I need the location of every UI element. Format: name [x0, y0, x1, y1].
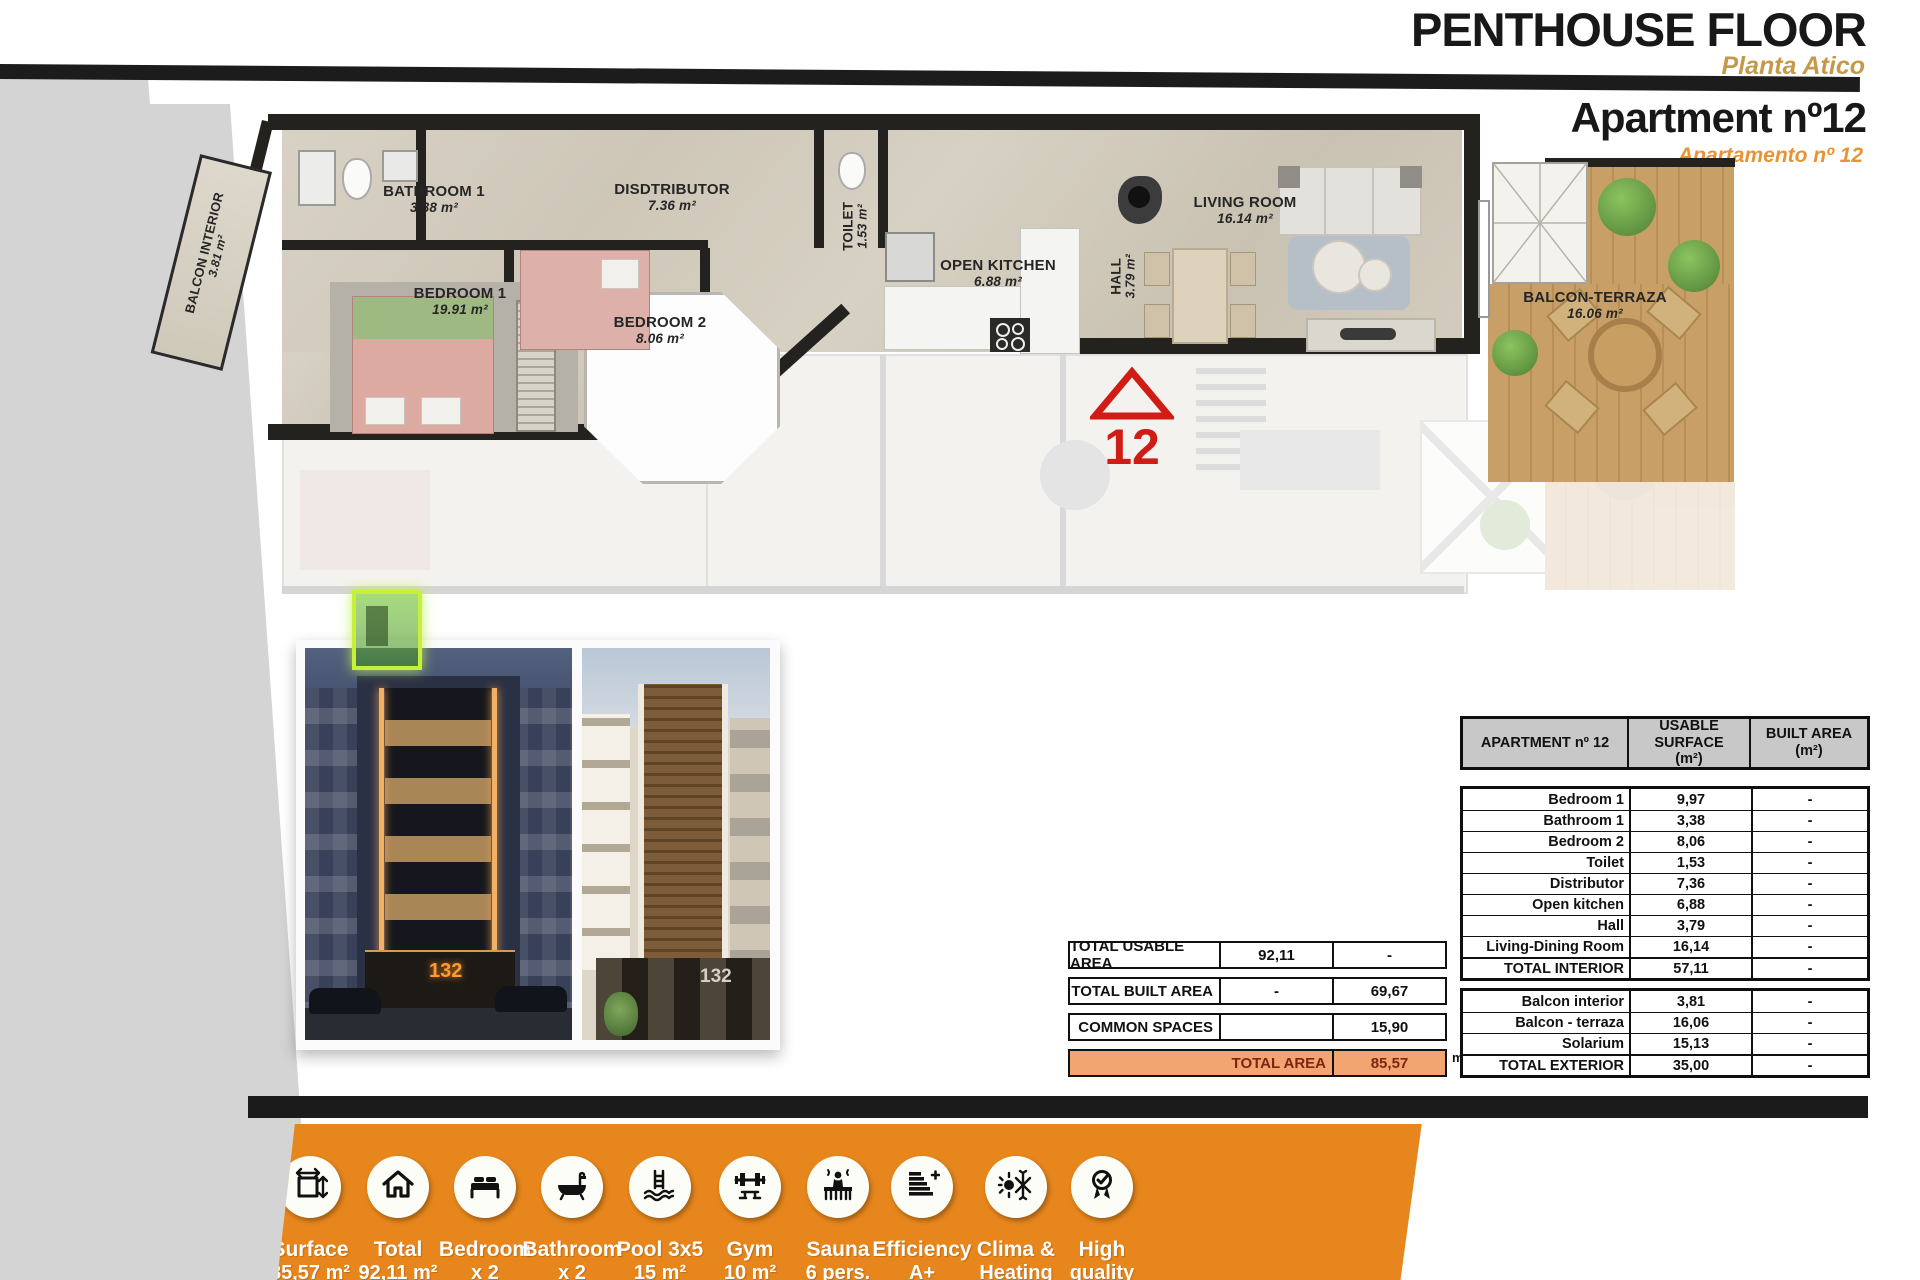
- summary-row-common: COMMON SPACES 15,90: [1068, 1013, 1447, 1041]
- building-number-badge: 132: [429, 960, 462, 983]
- table-row: Living-Dining Room16,14-: [1463, 936, 1867, 957]
- room-label-bathroom1: BATHROOM 13.38 m²: [372, 184, 496, 215]
- efficiency-icon: [904, 1167, 940, 1208]
- stove: [990, 318, 1030, 352]
- table-row-total-interior: TOTAL INTERIOR57,11-: [1463, 957, 1867, 978]
- pouf: [1358, 258, 1392, 292]
- table-row: Balcon interior3,81-: [1463, 991, 1867, 1012]
- room-label-hall: HALL3.79 m²: [1110, 238, 1139, 314]
- dining-chair: [1230, 304, 1256, 338]
- wall-segment: [814, 128, 824, 248]
- table-row: Toilet1,53-: [1463, 852, 1867, 873]
- table-row: Balcon - terraza16,06-: [1463, 1012, 1867, 1033]
- page-title: PENTHOUSE FLOOR: [1411, 2, 1866, 57]
- room-label-toilet: TOILET1.53 m²: [842, 188, 871, 264]
- vanity: [382, 150, 418, 182]
- pergola: [1492, 162, 1588, 284]
- room-label-kitchen: OPEN KITCHEN6.88 m²: [920, 258, 1076, 289]
- pool-icon: [642, 1167, 678, 1208]
- area-table-interior: Bedroom 19,97- Bathroom 13,38- Bedroom 2…: [1460, 786, 1870, 981]
- dining-table: [1172, 248, 1228, 344]
- terrace-table: [1588, 318, 1662, 392]
- summary-total-label: TOTAL AREA: [1070, 1051, 1332, 1075]
- wall-segment: [268, 114, 1480, 130]
- bottom-divider-bar: [248, 1096, 1868, 1118]
- table-row: Open kitchen6,88-: [1463, 894, 1867, 915]
- room-label-bedroom2: BEDROOM 28.06 m²: [598, 315, 722, 346]
- dining-chair: [1230, 252, 1256, 286]
- room-label-distributor: DISDTRIBUTOR7.36 m²: [598, 182, 746, 213]
- terrace-door: [1478, 200, 1490, 318]
- wall-segment: [282, 240, 708, 250]
- features-bar: Surface85,57 m² Total92,11 m² Bedroomx 2: [250, 1124, 1430, 1280]
- room-label-terraza: BALCON-TERRAZA16.06 m²: [1508, 290, 1682, 321]
- table-row-total-exterior: TOTAL EXTERIOR35,00-: [1463, 1054, 1867, 1075]
- table-row: Solarium15,13-: [1463, 1033, 1867, 1054]
- summary-label: TOTAL BUILT AREA: [1070, 979, 1219, 1003]
- summary-value: -: [1219, 979, 1332, 1003]
- apartment-marker-number: 12: [1090, 418, 1174, 476]
- gym-icon: [732, 1167, 768, 1208]
- summary-row-usable: TOTAL USABLE AREA 92,11 -: [1068, 941, 1447, 969]
- wall-segment: [878, 128, 888, 248]
- sauna-icon: [820, 1167, 856, 1208]
- bed-icon: [467, 1167, 503, 1208]
- dining-chair: [1144, 252, 1170, 286]
- building-photo-day: 132: [582, 648, 770, 1040]
- table-row: Distributor7,36-: [1463, 873, 1867, 894]
- summary-total-value: 85,57: [1332, 1051, 1445, 1075]
- summary-label: TOTAL USABLE AREA: [1070, 943, 1219, 967]
- bathtub-icon: [554, 1167, 590, 1208]
- header-divider-bar: [0, 64, 1860, 92]
- house-icon: [380, 1167, 416, 1208]
- bush: [1492, 330, 1538, 376]
- climate-icon: [998, 1167, 1034, 1208]
- building-number-badge: 132: [700, 966, 732, 988]
- penthouse-floor-sheet: PENTHOUSE FLOOR Planta Atico Apartment n…: [0, 0, 1920, 1280]
- area-table-header: APARTMENT nº 12 USABLE SURFACE (m²) BUIL…: [1460, 716, 1870, 770]
- room-label-living: LIVING ROOM16.14 m²: [1170, 195, 1320, 226]
- room-label-balcon-interior: BALCON INTERIOR 3.81 m²: [179, 174, 244, 336]
- summary-value: 15,90: [1332, 1015, 1445, 1039]
- pouf: [1312, 240, 1366, 294]
- area-table-title: APARTMENT nº 12: [1463, 735, 1627, 752]
- table-row: Bedroom 28,06-: [1463, 831, 1867, 852]
- highlighted-unit-box: [352, 590, 422, 670]
- summary-label: COMMON SPACES: [1070, 1015, 1219, 1039]
- dining-chair: [1144, 304, 1170, 338]
- building-photo-night: 132: [305, 648, 572, 1040]
- apartment-marker-triangle: [1090, 366, 1174, 422]
- summary-value: -: [1332, 943, 1445, 967]
- tv-bench: [1306, 318, 1436, 352]
- room-label-bedroom1: BEDROOM 119.91 m²: [398, 286, 522, 317]
- area-table-exterior: Balcon interior3,81- Balcon - terraza16,…: [1460, 988, 1870, 1078]
- apartment-title: Apartment nº12: [1571, 94, 1866, 142]
- quality-icon: [1084, 1167, 1120, 1208]
- summary-value: 92,11: [1219, 943, 1332, 967]
- summary-value: [1219, 1015, 1332, 1039]
- shower: [298, 150, 336, 206]
- bush: [1598, 178, 1656, 236]
- toilet-fixture: [342, 158, 372, 200]
- bush: [1668, 240, 1720, 292]
- surface-icon: [292, 1167, 328, 1208]
- table-row: Bedroom 19,97-: [1463, 789, 1867, 810]
- wc-fixture: [838, 152, 866, 190]
- table-row: Bathroom 13,38-: [1463, 810, 1867, 831]
- table-row: Hall3,79-: [1463, 915, 1867, 936]
- summary-row-built: TOTAL BUILT AREA - 69,67: [1068, 977, 1447, 1005]
- summary-value: 69,67: [1332, 979, 1445, 1003]
- summary-total-row: TOTAL AREA 85,57: [1068, 1049, 1447, 1077]
